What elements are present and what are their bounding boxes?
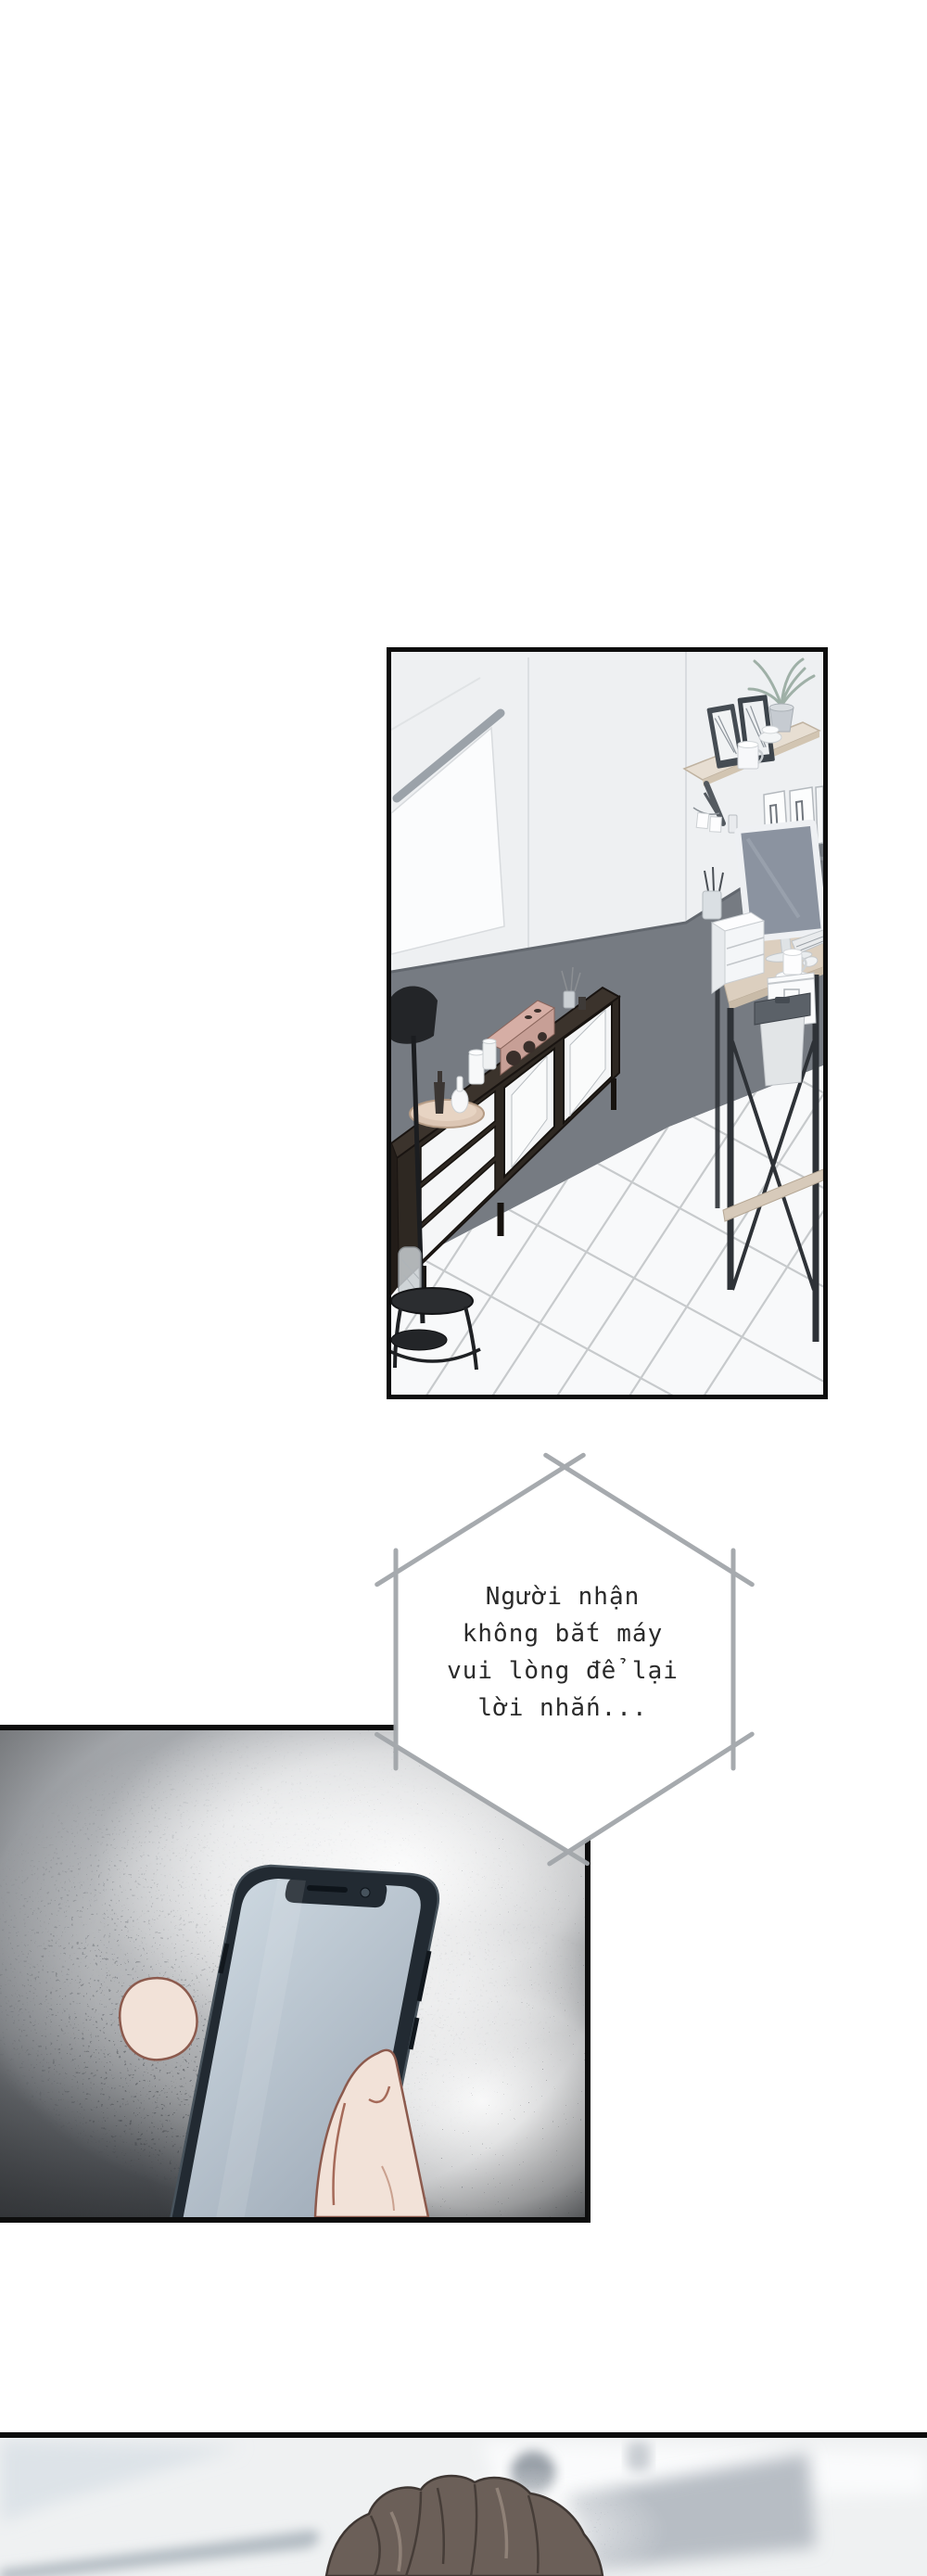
bottom-illustration (0, 2438, 927, 2576)
voicemail-line: vui lòng để lại (385, 1652, 741, 1690)
room-illustration (391, 652, 823, 1395)
earpiece (310, 1888, 345, 1890)
comic-page: Người nhận không bắt máy vui lòng để lại… (0, 0, 927, 2576)
panel-bottom-scene (0, 2432, 927, 2576)
side-table (391, 1288, 473, 1314)
voicemail-line: không bắt máy (385, 1615, 741, 1652)
panel-room-scene (387, 647, 828, 1399)
thumb (120, 1978, 197, 2060)
speech-bubble: Người nhận không bắt máy vui lòng để lại… (371, 1443, 755, 1879)
camera-dot (361, 1888, 370, 1897)
voicemail-line: lời nhắn... (385, 1690, 741, 1727)
voicemail-line: Người nhận (385, 1578, 741, 1615)
voicemail-text: Người nhận không bắt máy vui lòng để lại… (385, 1578, 741, 1727)
